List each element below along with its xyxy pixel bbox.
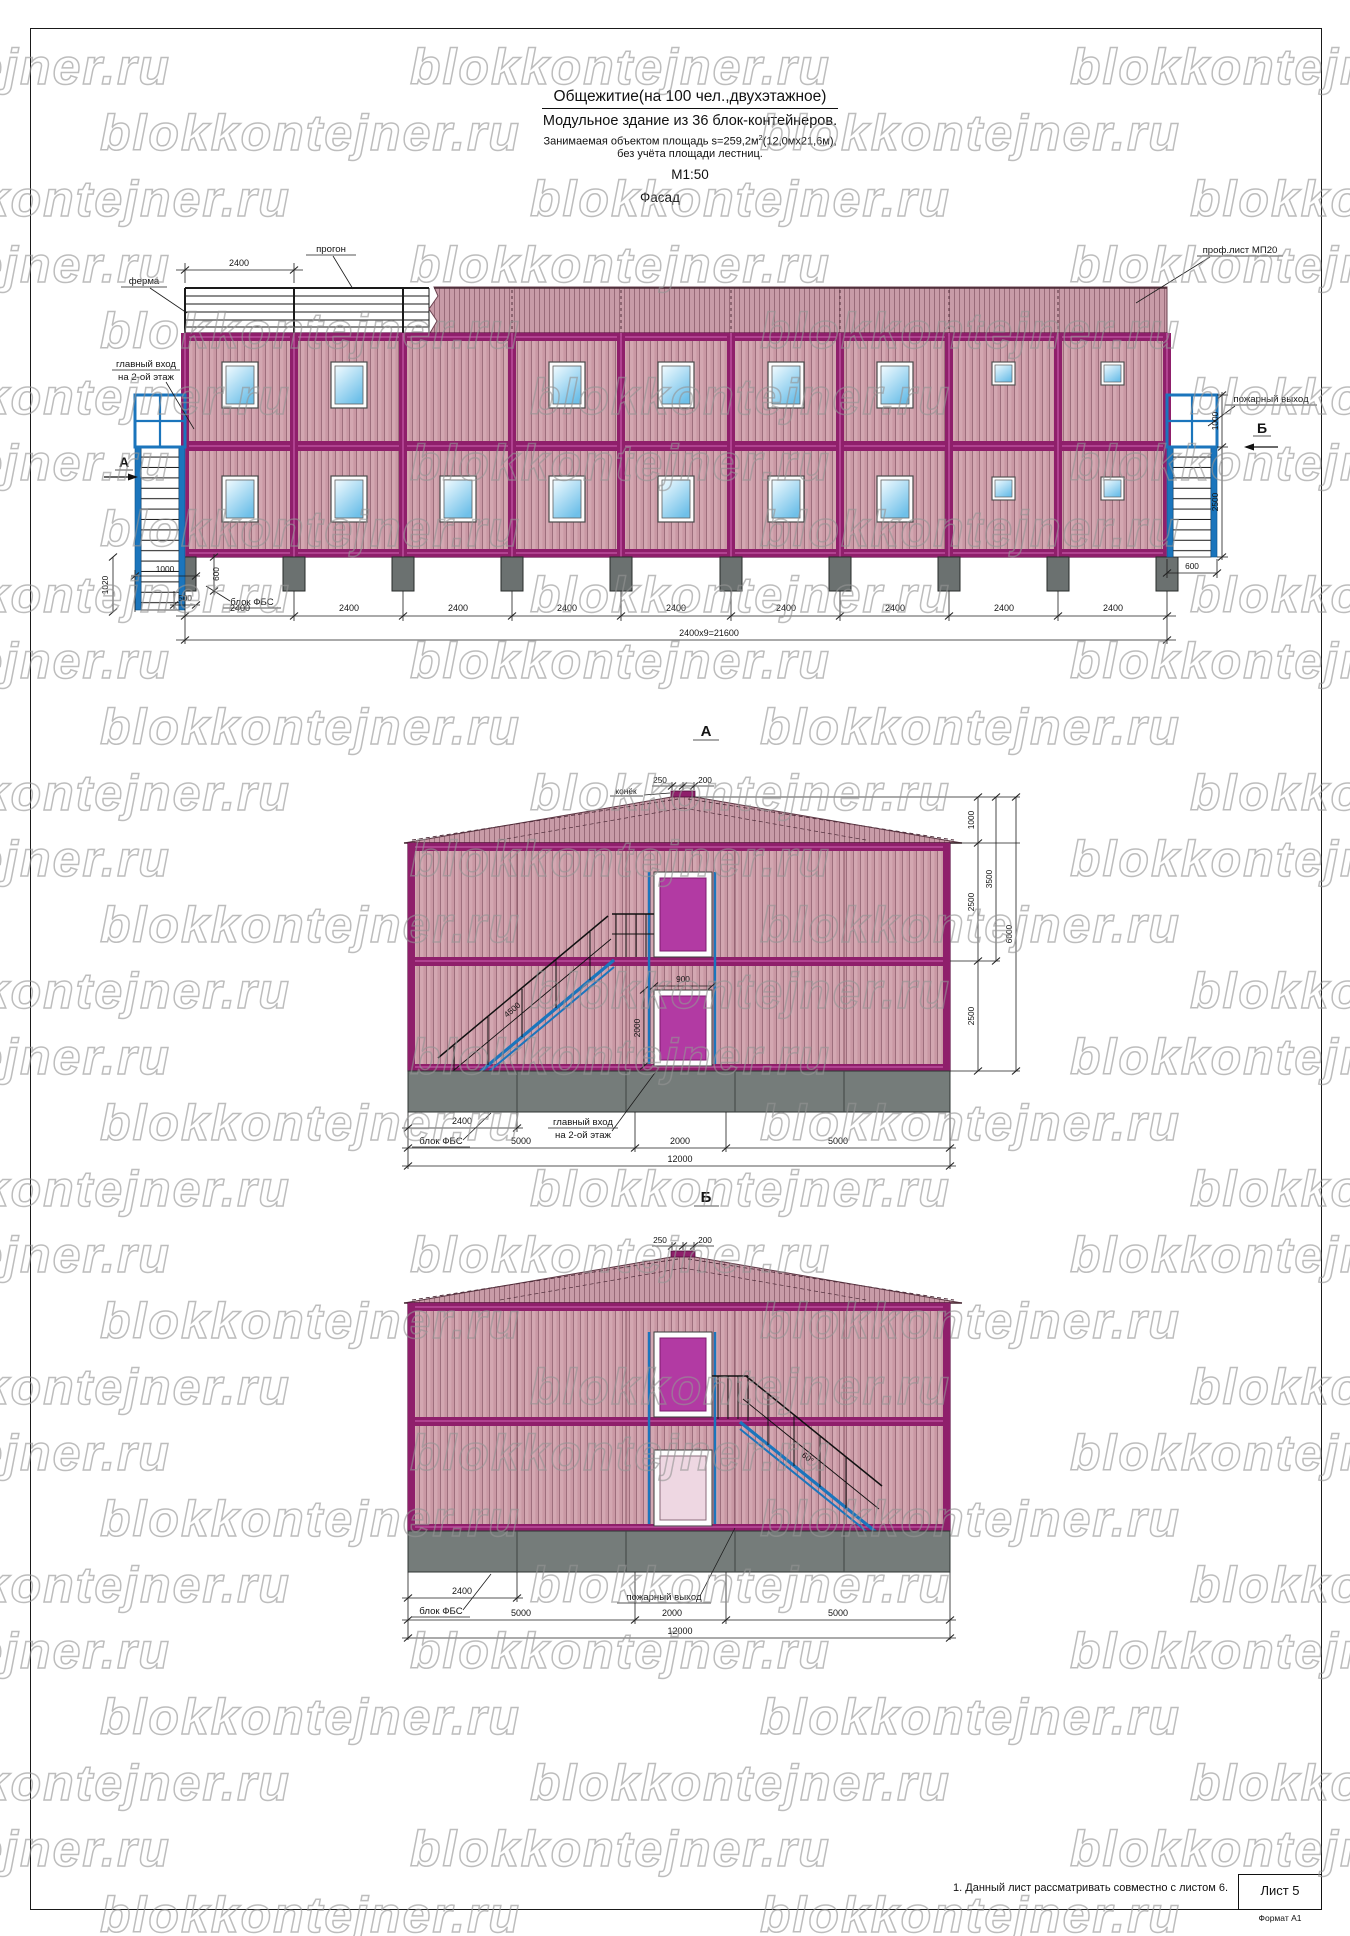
drawing-scale: М1:50	[410, 167, 970, 182]
block-width-dim: 500	[178, 593, 192, 603]
view-b-ground	[408, 1531, 950, 1572]
door-width-dim: 900	[676, 974, 690, 984]
sheet-note: 1. Данный лист рассматривать совместно с…	[700, 1882, 1228, 1894]
fire-exit-label: пожарный выход	[626, 1592, 702, 1603]
lower-door	[660, 996, 706, 1060]
module-dim: 2400	[557, 603, 577, 613]
right-stair-width-dim: 600	[1185, 561, 1199, 571]
total-width-dim: 12000	[667, 1626, 692, 1636]
drawing-sheet: blokkontejner.rublokkontejner.rublokkont…	[0, 0, 1350, 1936]
right-span-dim: 5000	[828, 1136, 848, 1146]
total-length-dim: 2400х9=21600	[679, 628, 739, 638]
total-width-dim: 12000	[667, 1154, 692, 1164]
fbs-span-dim: 2400	[452, 1586, 472, 1596]
fbs-block-label: блок ФБС	[419, 1606, 462, 1617]
module-dim: 2400	[1103, 603, 1123, 613]
truss-label: ферма	[129, 276, 160, 287]
lower-floor-dim: 2500	[966, 1006, 976, 1025]
main-entrance-label-1: главный вход	[553, 1117, 613, 1128]
module-dim: 2400	[994, 603, 1014, 613]
facade-drawing: 2400 прогон ферма проф.лист МП20 главный…	[0, 200, 1350, 700]
module-dim: 2400	[666, 603, 686, 613]
module-dim: 2400	[230, 603, 250, 613]
block-height-dim: 600	[211, 567, 221, 581]
view-a-title: А	[701, 723, 712, 740]
upper-door	[660, 1338, 706, 1411]
section-marker-a: А	[119, 454, 129, 470]
sheet-number: Лист 5	[1238, 1874, 1322, 1910]
title-line-3: Занимаемая объектом площадь s=259,2м2(12…	[410, 133, 970, 148]
left-stair-dim: 1020	[100, 575, 110, 594]
module-dim: 2400	[776, 603, 796, 613]
stair-offset-dim: 1000	[156, 564, 175, 574]
mid-span-dim: 2000	[662, 1608, 682, 1618]
to-ridge-dim: 3500	[984, 869, 994, 888]
mid-span-dim: 2000	[670, 1136, 690, 1146]
title-line-4: без учёта площади лестниц.	[410, 148, 970, 160]
upper-floor-dim: 2500	[966, 892, 976, 911]
left-span-dim: 5000	[511, 1608, 531, 1618]
title-line-1: Общежитие(на 100 чел.,двухэтажное)	[410, 88, 970, 109]
right-stair-height-dim: 2500	[1210, 492, 1220, 511]
ridge-dim-left: 250	[653, 775, 667, 785]
roof-sheet-label: проф.лист МП20	[1203, 245, 1278, 256]
view-a-ground	[408, 1071, 950, 1112]
ridge-label: конёк	[615, 786, 637, 796]
side-view-b: Б 250 200 60° 2400 блок ФБС пожарный вых…	[0, 1190, 1350, 1660]
module-dim: 2400	[885, 603, 905, 613]
roof-height-dim: 1000	[966, 810, 976, 829]
facade-roof-sheet	[429, 287, 1167, 333]
upper-door	[660, 878, 706, 951]
fbs-block-label: блок ФБС	[419, 1136, 462, 1147]
fire-exit-door	[660, 1456, 706, 1520]
sheet-format: Формат А1	[1238, 1913, 1322, 1923]
module-dim: 2400	[339, 603, 359, 613]
right-top-dim: 1000	[1210, 411, 1220, 430]
view-b-title: Б	[701, 1189, 712, 1206]
view-b-roof	[404, 1251, 962, 1303]
right-span-dim: 5000	[828, 1608, 848, 1618]
main-entrance-label-2: на 2-ой этаж	[118, 372, 174, 383]
ridge-dim-left: 250	[653, 1235, 667, 1245]
ridge-dim-right: 200	[698, 775, 712, 785]
title-block: Общежитие(на 100 чел.,двухэтажное) Модул…	[410, 88, 970, 182]
facade-roof-truss	[185, 288, 429, 333]
total-height-dim: 6000	[1004, 924, 1014, 943]
main-entrance-label-2: на 2-ой этаж	[555, 1130, 611, 1141]
fire-exit-label: пожарный выход	[1233, 394, 1309, 405]
left-span-dim: 5000	[511, 1136, 531, 1146]
side-view-a: А конёк 250 200 1000 2500 2500 3500 6000…	[0, 700, 1350, 1190]
purlin-label: прогон	[316, 244, 346, 255]
title-line-2: Модульное здание из 36 блок-контейнеров.	[410, 113, 970, 129]
ridge-dim-right: 200	[698, 1235, 712, 1245]
door-height-dim: 2000	[632, 1018, 642, 1037]
facade-left-stairs	[135, 395, 185, 610]
top-module-dim: 2400	[229, 258, 249, 268]
facade-foundation-blocks	[174, 557, 1178, 591]
section-marker-b: Б	[1257, 420, 1267, 436]
module-dim: 2400	[448, 603, 468, 613]
view-a-roof	[404, 791, 962, 843]
fbs-span-dim: 2400	[452, 1116, 472, 1126]
main-entrance-label-1: главный вход	[116, 359, 176, 370]
